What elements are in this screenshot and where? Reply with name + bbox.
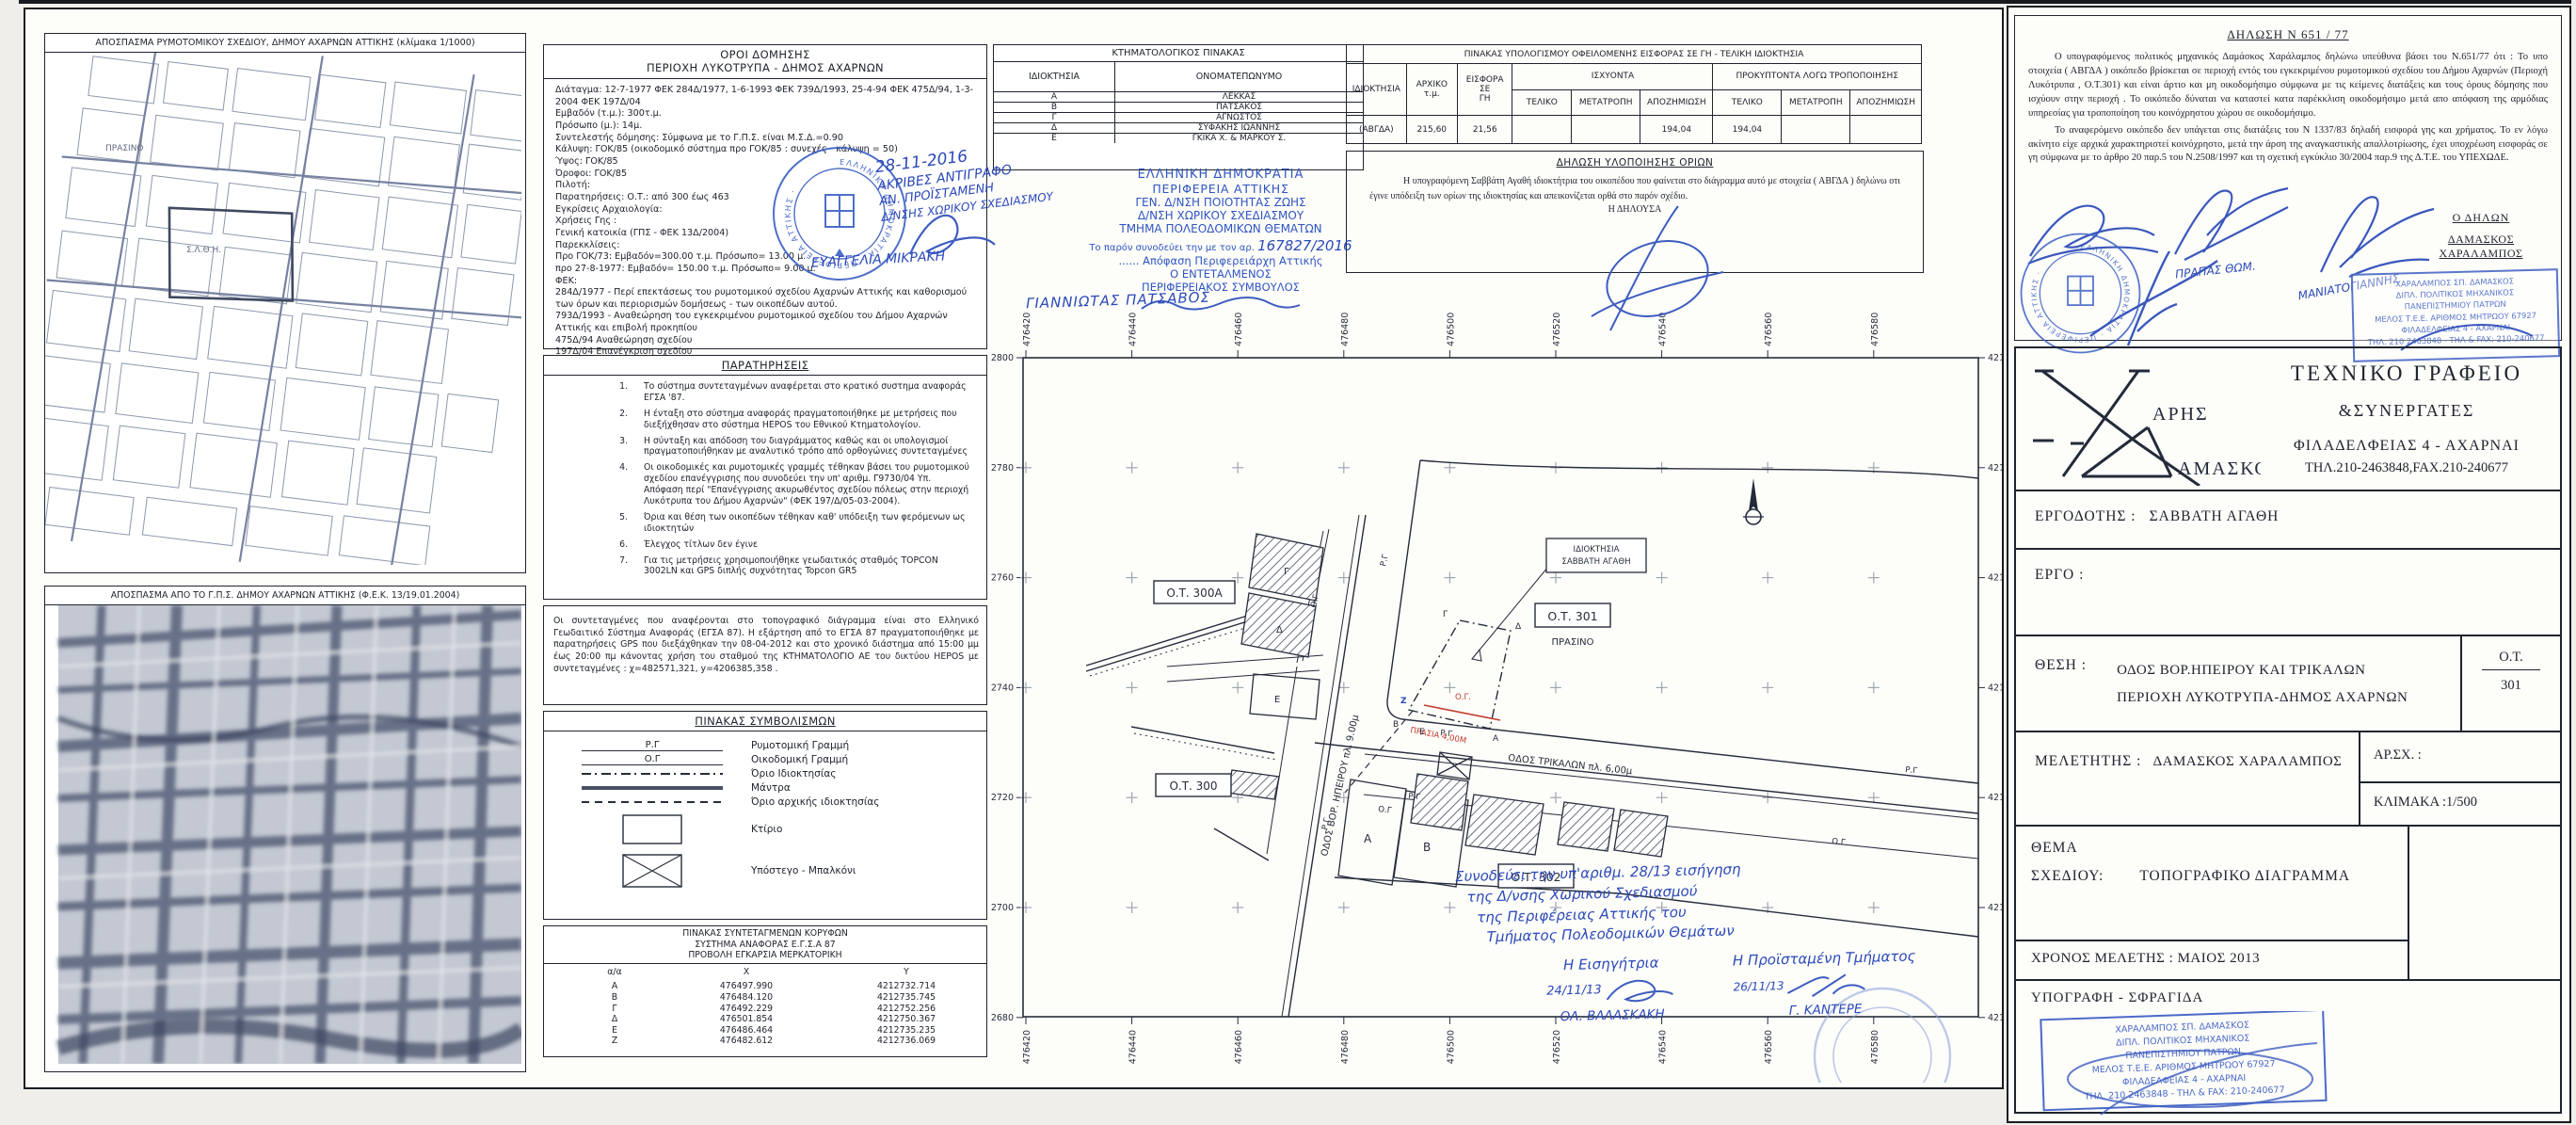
vertex-id: Ζ bbox=[563, 1036, 666, 1047]
svg-text:ΤΗΛ. 210 2463848 - ΤΗΛ & FAX:: ΤΗΛ. 210 2463848 - ΤΗΛ & FAX: 210-240677 bbox=[2084, 1085, 2285, 1101]
legend-panel: ΠΙΝΑΚΑΣ ΣΥΜΒΟΛΙΣΜΩΝ Ρ.Γ Ρυμοτομική Γραμμ… bbox=[543, 711, 987, 920]
office-logo: ΑΡΗΣ ΑΜΑΣΚΟΣ bbox=[2025, 354, 2261, 486]
svg-text:Γ: Γ bbox=[1443, 610, 1448, 619]
svg-text:Ο.Γ: Ο.Γ bbox=[1378, 805, 1392, 815]
kt-owner-id: Γ bbox=[994, 113, 1115, 122]
titleblock-thesi-row: ΘΕΣΗ : ΟΔΟΣ ΒΟΡ.ΗΠΕΙΡΟΥ ΚΑΙ ΤΡΙΚΑΛΩΝ ΠΕΡ… bbox=[2016, 635, 2560, 731]
note-item: Όρια και θέση των οικοπέδων τέθηκαν καθ'… bbox=[631, 512, 971, 535]
eisfora-row-i2 bbox=[1572, 116, 1640, 144]
svg-text:ΔΙΠΛ. ΠΟΛΙΤΙΚΟΣ ΜΗΧΑΝΙΚΟΣ: ΔΙΠΛ. ΠΟΛΙΤΙΚΟΣ ΜΗΧΑΝΙΚΟΣ bbox=[2116, 1034, 2250, 1049]
vertex-letters: Γ Δ Α Β Ε Ζ bbox=[1393, 610, 1522, 744]
ot300a-label: Ο.Τ. 300Α bbox=[1166, 587, 1223, 600]
note-date-1: 24/11/13 bbox=[1546, 982, 1602, 1001]
svg-text:Ρ.Γ: Ρ.Γ bbox=[1408, 792, 1421, 802]
prasino-label: ΠΡΑΣΙΝΟ bbox=[1551, 637, 1593, 648]
vertex-id: Γ bbox=[563, 1004, 666, 1015]
svg-text:ΦΙΛΑΔΕΛΦΕΙΑΣ 4 - ΑΧΑΡΝΑΙ: ΦΙΛΑΔΕΛΦΕΙΑΣ 4 - ΑΧΑΡΝΑΙ bbox=[2122, 1073, 2247, 1088]
ot-value: 301 bbox=[2462, 678, 2560, 694]
declaration-p1: Ο υπογραφόμενος πολιτικός μηχανικός Δαμά… bbox=[2015, 42, 2561, 121]
svg-text:4212780: 4212780 bbox=[990, 463, 1014, 474]
thesi-line-1: ΟΔΟΣ ΒΟΡ.ΗΠΕΙΡΟΥ ΚΑΙ ΤΡΙΚΑΛΩΝ bbox=[2117, 657, 2408, 684]
vertex-id: Α bbox=[563, 981, 666, 992]
svg-text:4212780: 4212780 bbox=[1988, 463, 2002, 474]
declarant-name: ΔΑΜΑΣΚΟΣ ΧΑΡΑΛΑΜΠΟΣ bbox=[2410, 233, 2552, 261]
klimaka-cell: ΚΛΙΜΑΚΑ :1/500 bbox=[2360, 783, 2560, 811]
ot300-label: Ο.Τ. 300 bbox=[1169, 779, 1217, 793]
ot301-label: Ο.Τ. 301 bbox=[1547, 609, 1597, 623]
office-address: ΦΙΛΑΔΕΛΦΕΙΑΣ 4 - ΑΧΑΡΝΑΙ bbox=[2256, 438, 2557, 455]
eisfora-h-isxyonta: ΙΣΧΥΟΝΤΑ bbox=[1512, 64, 1713, 90]
kt-owner-id: Β bbox=[994, 103, 1115, 112]
svg-text:476420: 476420 bbox=[1022, 313, 1032, 346]
office-phone: ΤΗΛ.210-2463848,FAX.210-240677 bbox=[2256, 460, 2557, 476]
coords-title-1: ΠΙΝΑΚΑΣ ΣΥΝΤΕΤΑΓΜΕΝΩΝ ΚΟΡΥΦΩΝ bbox=[544, 928, 986, 940]
main-sheet: ΑΠΟΣΠΑΣΜΑ ΡΥΜΟΤΟΜΙΚΟΥ ΣΧΕΔΙΟΥ, ΔΗΜΟΥ ΑΧΑ… bbox=[24, 8, 2004, 1089]
note-item: Έλεγχος τίτλων δεν έγινε bbox=[631, 539, 971, 551]
callout-line-1: ΙΔΙΟΚΤΗΣΙΑ bbox=[1574, 545, 1620, 554]
vertex-y: 4212752.256 bbox=[826, 1004, 986, 1015]
red-building-line bbox=[1424, 705, 1500, 720]
eisfora-row-i1 bbox=[1512, 116, 1572, 144]
map1-area-label-1: ΠΡΑΣΙΝΟ bbox=[105, 144, 144, 153]
map2-panel: ΑΠΟΣΠΑΣΜΑ ΑΠΟ ΤΟ Γ.Π.Σ. ΔΗΜΟΥ ΑΧΑΡΝΩΝ ΑΤ… bbox=[44, 586, 526, 1072]
svg-text:4212740: 4212740 bbox=[1988, 683, 2002, 693]
gps-note-panel: Οι συντεταγμένες που αναφέρονται στο τοπ… bbox=[543, 605, 987, 705]
og-symbol-text: Ο.Γ bbox=[645, 754, 661, 764]
vertex-x: 476492.229 bbox=[666, 1004, 826, 1015]
building-label-A: Α bbox=[1364, 832, 1372, 845]
svg-text:4212740: 4212740 bbox=[990, 683, 1014, 693]
vertex-y: 4212735.745 bbox=[826, 992, 986, 1004]
svg-text:Ρ.Γ: Ρ.Γ bbox=[1440, 729, 1453, 739]
titleblock-logo-row: ΑΡΗΣ ΑΜΑΣΚΟΣ ΤΕΧΝΙΚΟ ΓΡΑΦΕΙΟ &ΣΥΝΕΡΓΑΤΕΣ… bbox=[2016, 348, 2560, 490]
eisfora-title: ΠΙΝΑΚΑΣ ΥΠΟΛΟΓΙΣΜΟΥ ΟΦΕΙΛΟΜΕΝΗΣ ΕΙΣΦΟΡΑΣ… bbox=[1347, 45, 1922, 64]
dashed-line-symbol bbox=[582, 801, 723, 803]
thick-line-symbol bbox=[582, 786, 723, 790]
vertex-x: 476497.990 bbox=[666, 981, 826, 992]
legend-item-mantra: Μάντρα bbox=[553, 782, 977, 794]
ergodotis-label: ΕΡΓΟΔΟΤΗΣ : bbox=[2035, 508, 2136, 524]
map2-image bbox=[45, 605, 521, 1064]
map1-area-label-2: Σ.Λ.Θ.Η. bbox=[186, 246, 221, 255]
map2-title: ΑΠΟΣΠΑΣΜΑ ΑΠΟ ΤΟ Γ.Π.Σ. ΔΗΜΟΥ ΑΧΑΡΝΩΝ ΑΤ… bbox=[45, 587, 525, 605]
drawing-handwritten-note: Συνοδεύει την υπ'αριθμ. 28/13 εισήγηση τ… bbox=[1431, 855, 1924, 1030]
road-vor-ipeirou-label: ΟΔΟΣ ΒΟΡ. ΗΠΕΙΡΟΥ πλ. 9.00μ bbox=[1320, 714, 1361, 858]
declaration-p2: Το αναφερόμενο οικόπεδο δεν υπάγεται στι… bbox=[2015, 121, 2561, 166]
kt-owner-name: ΛΕΚΚΑΣ bbox=[1115, 92, 1363, 102]
note-item: Η ένταξη στο σύστημα αναφοράς πραγματοπο… bbox=[631, 409, 971, 431]
svg-text:4212720: 4212720 bbox=[990, 793, 1014, 803]
eisfora-h-apozimiosi: ΑΠΟΖΗΜΙΩΣΗ bbox=[1640, 89, 1713, 116]
vertex-y: 4212732.714 bbox=[826, 981, 986, 992]
ot-label: Ο.Τ. bbox=[2482, 650, 2540, 670]
kt-owner-id: Α bbox=[994, 92, 1115, 102]
coords-h-x: X bbox=[666, 967, 826, 978]
building-label-E: Ε bbox=[1274, 695, 1280, 705]
kt-owner-name: ΠΑΤΣΑΚΟΣ bbox=[1115, 103, 1363, 112]
thesi-line-2: ΠΕΡΙΟΧΗ ΛΥΚΟΤΡΥΠΑ-ΔΗΜΟΣ ΑΧΑΡΝΩΝ bbox=[2117, 684, 2408, 712]
dashdot-line-symbol bbox=[582, 773, 723, 775]
kt-header-onoma: ΟΝΟΜΑΤΕΠΩΝΥΜΟ bbox=[1115, 62, 1363, 91]
svg-text:Ρ.Γ: Ρ.Γ bbox=[1905, 765, 1918, 776]
svg-text:476580: 476580 bbox=[1870, 313, 1880, 346]
red-prasia-label: ΠΡΑΣΙΑ 4,00Μ bbox=[1409, 726, 1466, 746]
svg-text:4212700: 4212700 bbox=[990, 903, 1014, 913]
eisfora-row-p1: 194,04 bbox=[1713, 116, 1782, 144]
titleblock-meletitis-row: ΜΕΛΕΤΗΤΗΣ : ΔΑΜΑΣΚΟΣ ΧΑΡΑΛΑΜΠΟΣ ΑΡ.ΣΧ. :… bbox=[2016, 731, 2560, 825]
eisfora-row-p3 bbox=[1850, 116, 1922, 144]
region-line: ΤΜΗΜΑ ΠΟΛΕΟΔΟΜΙΚΩΝ ΘΕΜΑΤΩΝ bbox=[1037, 222, 1404, 235]
svg-text:4212700: 4212700 bbox=[1988, 903, 2002, 913]
canopy-symbol bbox=[621, 853, 683, 889]
red-og-label: Ο.Γ. bbox=[1455, 693, 1471, 702]
svg-text:476560: 476560 bbox=[1764, 313, 1774, 346]
map1-title: ΑΠΟΣΠΑΣΜΑ ΡΥΜΟΤΟΜΙΚΟΥ ΣΧΕΔΙΟΥ, ΔΗΜΟΥ ΑΧΑ… bbox=[45, 34, 525, 53]
coords-title-3: ΠΡΟΒΟΛΗ ΕΓΚΑΡΣΙΑ ΜΕΡΚΑΤΟΡΙΚΗ bbox=[544, 950, 986, 961]
eisfora-panel: ΠΙΝΑΚΑΣ ΥΠΟΛΟΓΙΣΜΟΥ ΟΦΕΙΛΟΜΕΝΗΣ ΕΙΣΦΟΡΑΣ… bbox=[1346, 44, 1922, 144]
building-E-outline bbox=[1250, 674, 1320, 719]
vertex-x: 476484.120 bbox=[666, 992, 826, 1004]
svg-text:Ο.Γ: Ο.Γ bbox=[1832, 837, 1846, 847]
note-item: Οι οικοδομικές και ρυμοτομικές γραμμές τ… bbox=[631, 462, 971, 507]
paratiriseis-panel: ΠΑΡΑΤΗΡΗΣΕΙΣ Το σύστημα συντεταγμένων αν… bbox=[543, 355, 987, 600]
region-line: Ο ΕΝΤΕΤΑΛΜΕΝΟΣ bbox=[1037, 267, 1404, 281]
ot300-hatched-piece bbox=[1227, 770, 1279, 799]
declaration-title: ΔΗΛΩΣΗ Ν 651 / 77 bbox=[2015, 16, 2561, 42]
gps-note-text: Οι συντεταγμένες που αναφέρονται στο τοπ… bbox=[544, 606, 986, 675]
svg-text:476520: 476520 bbox=[1552, 313, 1562, 346]
eisfora-h-metatropi: ΜΕΤΑΤΡΟΠΗ bbox=[1572, 89, 1640, 116]
ypografi-label: ΥΠΟΓΡΑΦΗ - ΣΦΡΑΓΙΔΑ bbox=[2016, 981, 2560, 1006]
vertex-x: 476501.854 bbox=[666, 1014, 826, 1025]
note-signature-2 bbox=[1784, 968, 1869, 1002]
logo-name-bottom: ΑΜΑΣΚΟΣ bbox=[2178, 458, 2261, 479]
coords-h-id: α/α bbox=[563, 967, 666, 978]
dilosi-title: ΔΗΛΩΣΗ ΥΛΟΠΟΙΗΣΗΣ ΟΡΙΩΝ bbox=[1347, 152, 1923, 169]
scan-top-rule bbox=[19, 0, 2571, 4]
xronos-cell: ΧΡΟΝΟΣ ΜΕΛΕΤΗΣ : ΜΑΙΟΣ 2013 bbox=[2016, 941, 2408, 981]
vertex-y: 4212735.235 bbox=[826, 1025, 986, 1037]
eisfora-h-idioktisia: ΙΔΙΟΚΤΗΣΙΑ bbox=[1347, 64, 1407, 116]
svg-text:476520: 476520 bbox=[1552, 1030, 1562, 1064]
road-trikalon-label: ΟΔΟΣ ΤΡΙΚΑΛΩΝ πλ. 6,00μ bbox=[1508, 753, 1634, 777]
note-signature-1 bbox=[1601, 973, 1677, 1007]
eisfora-row-i3: 194,04 bbox=[1640, 116, 1713, 144]
coords-title-2: ΣΥΣΤΗΜΑ ΑΝΑΦΟΡΑΣ Ε.Γ.Σ.Α 87 bbox=[544, 940, 986, 951]
eisfora-h-teliko: ΤΕΛΙΚΟ bbox=[1512, 89, 1572, 116]
svg-text:4212680: 4212680 bbox=[990, 1013, 1014, 1023]
declaration-651-panel: ΔΗΛΩΣΗ Ν 651 / 77 Ο υπογραφόμενος πολιτι… bbox=[2014, 15, 2562, 341]
ergodotis-value: ΣΑΒΒΑΤΗ ΑΓΑΘΗ bbox=[2150, 508, 2280, 524]
svg-text:Ρ.Γ: Ρ.Γ bbox=[1379, 554, 1391, 568]
svg-text:Β: Β bbox=[1393, 720, 1399, 730]
ypografi-stamp: ΧΑΡΑΛΑΜΠΟΣ ΣΠ. ΔΑΜΑΣΚΟΣ ΔΙΠΛ. ΠΟΛΙΤΙΚΟΣ … bbox=[2035, 1011, 2355, 1117]
coords-table-panel: ΠΙΝΑΚΑΣ ΣΥΝΤΕΤΑΓΜΕΝΩΝ ΚΟΡΥΦΩΝ ΣΥΣΤΗΜΑ ΑΝ… bbox=[543, 925, 987, 1057]
eisfora-h-metatropi2: ΜΕΤΑΤΡΟΠΗ bbox=[1782, 89, 1850, 116]
note-item: Το σύστημα συντεταγμένων αναφέρεται στο … bbox=[631, 381, 971, 404]
rg-symbol-text: Ρ.Γ bbox=[646, 740, 660, 750]
declaration-signature-3 bbox=[2072, 242, 2222, 350]
region-line: ...... Απόφαση Περιφερειάρχη Αττικής bbox=[1037, 254, 1404, 267]
ot-cell: Ο.Τ. 301 bbox=[2460, 636, 2560, 731]
svg-text:4212720: 4212720 bbox=[1988, 793, 2002, 803]
svg-text:476500: 476500 bbox=[1446, 313, 1456, 346]
svg-text:4212800: 4212800 bbox=[990, 353, 1014, 363]
titleblock-ergodotis-row: ΕΡΓΟΔΟΤΗΣ : ΣΑΒΒΑΤΗ ΑΓΑΘΗ bbox=[2016, 490, 2560, 548]
title-block: ΑΡΗΣ ΑΜΑΣΚΟΣ ΤΕΧΝΙΚΟ ΓΡΑΦΕΙΟ &ΣΥΝΕΡΓΑΤΕΣ… bbox=[2014, 346, 2562, 1114]
legend-item-boundary: Όριο Ιδιοκτησίας bbox=[553, 768, 977, 779]
svg-text:476540: 476540 bbox=[1658, 1030, 1669, 1064]
vertex-x: 476486.464 bbox=[666, 1025, 826, 1037]
titleblock-ergo-row: ΕΡΓΟ : bbox=[2016, 548, 2560, 635]
eisfora-table: ΠΙΝΑΚΑΣ ΥΠΟΛΟΓΙΣΜΟΥ ΟΦΕΙΛΟΜΕΝΗΣ ΕΙΣΦΟΡΑΣ… bbox=[1346, 44, 1922, 144]
vertex-y: 4212750.367 bbox=[826, 1014, 986, 1025]
eisfora-h-teliko2: ΤΕΛΙΚΟ bbox=[1713, 89, 1782, 116]
svg-text:ΜΕΛΟΣ Τ.Ε.Ε. ΑΡΙΘΜΟΣ ΜΗΤΡΩΟΥ 6: ΜΕΛΟΣ Τ.Ε.Ε. ΑΡΙΘΜΟΣ ΜΗΤΡΩΟΥ 67927 bbox=[2092, 1059, 2276, 1076]
eisfora-row-id: (ΑΒΓΔΑ) bbox=[1347, 116, 1407, 144]
dilosi-signature bbox=[1573, 189, 1742, 340]
north-arrow-icon bbox=[1743, 478, 1764, 524]
svg-text:476420: 476420 bbox=[1022, 1030, 1032, 1064]
eisfora-row-arxiko: 215,60 bbox=[1406, 116, 1457, 144]
ergo-label: ΕΡΓΟ : bbox=[2035, 567, 2084, 583]
svg-text:4212680: 4212680 bbox=[1988, 1013, 2002, 1023]
svg-text:Ζ: Ζ bbox=[1400, 697, 1407, 706]
region-line: ΠΕΡΙΦΕΡΕΙΑΚΟΣ ΣΥΜΒΟΥΛΟΣ bbox=[1037, 281, 1404, 294]
kt-title: ΚΤΗΜΑΤΟΛΟΓΙΚΟΣ ΠΙΝΑΚΑΣ bbox=[994, 45, 1363, 62]
svg-text:476480: 476480 bbox=[1340, 1030, 1351, 1064]
svg-text:ΧΑΡΑΛΑΜΠΟΣ ΣΠ. ΔΑΜΑΣΚΟΣ: ΧΑΡΑΛΑΜΠΟΣ ΣΠ. ΔΑΜΑΣΚΟΣ bbox=[2115, 1021, 2249, 1036]
region-ref-label: Το παρόν συνοδεύει την με τον αρ. bbox=[1089, 243, 1254, 253]
building-label-D: Δ bbox=[1276, 625, 1283, 635]
svg-text:Δ: Δ bbox=[1515, 622, 1522, 632]
vertex-y: 4212736.069 bbox=[826, 1036, 986, 1047]
svg-text:476440: 476440 bbox=[1128, 1030, 1139, 1064]
building-symbol bbox=[621, 813, 683, 845]
svg-text:476580: 476580 bbox=[1870, 1030, 1880, 1064]
thema-label: ΘΕΜΑ bbox=[2031, 840, 2408, 857]
building-label-B: Β bbox=[1423, 841, 1431, 854]
legend-item-ypostego: Υπόστεγο - Μπαλκόνι bbox=[553, 851, 977, 891]
eisfora-h-apozimiosi2: ΑΠΟΖΗΜΙΩΣΗ bbox=[1850, 89, 1922, 116]
eisfora-row-p2 bbox=[1782, 116, 1850, 144]
legend-item-orig-boundary: Όριο αρχικής ιδιοκτησίας bbox=[553, 796, 977, 808]
titleblock-ypografi-row: ΥΠΟΓΡΑΦΗ - ΣΦΡΑΓΙΔΑ ΧΑΡΑΛΑΜΠΟΣ ΣΠ. ΔΑΜΑΣ… bbox=[2016, 979, 2560, 1116]
vertex-id: Ε bbox=[563, 1025, 666, 1037]
svg-text:Α: Α bbox=[1493, 734, 1499, 744]
thema-value: ΤΟΠΟΓΡΑΦΙΚΟ ΔΙΑΓΡΑΜΜΑ bbox=[2139, 868, 2350, 884]
dilosi-orion-panel: ΔΗΛΩΣΗ ΥΛΟΠΟΙΗΣΗΣ ΟΡΙΩΝ Η υπογραφόμενη Σ… bbox=[1346, 151, 1924, 273]
oroi-subtitle: ΠΕΡΙΟΧΗ ΛΥΚΟΤΡΥΠΑ - ΔΗΜΟΣ ΑΧΑΡΝΩΝ bbox=[544, 61, 986, 74]
kt-owner-name: ΑΓΝΩΣΤΟΣ bbox=[1115, 113, 1363, 122]
legend-item-og: Ο.Γ Οικοδομική Γραμμή bbox=[553, 754, 977, 765]
vertex-id: Δ bbox=[563, 1014, 666, 1025]
svg-text:Ο.Γ: Ο.Γ bbox=[1309, 593, 1321, 608]
office-subtitle: &ΣΥΝΕΡΓΑΤΕΣ bbox=[2256, 401, 2557, 421]
legend-title: ΠΙΝΑΚΑΣ ΣΥΜΒΟΛΙΣΜΩΝ bbox=[544, 712, 986, 731]
eisfora-h-eisfora: ΕΙΣΦΟΡΑ ΣΕ ΓΗ bbox=[1457, 64, 1512, 116]
region-ref-number: 167827/2016 bbox=[1257, 237, 1352, 254]
legend-item-ktirio: Κτίριο bbox=[553, 811, 977, 848]
note-date-2: 26/11/13 bbox=[1733, 978, 1784, 996]
kt-header-idioktisia: ΙΔΙΟΚΤΗΣΙΑ bbox=[994, 62, 1115, 91]
logo-name-top: ΑΡΗΣ bbox=[2152, 404, 2209, 425]
paratiriseis-title: ΠΑΡΑΤΗΡΗΣΕΙΣ bbox=[544, 356, 986, 376]
arsx-cell: ΑΡ.ΣΧ. : bbox=[2360, 732, 2560, 783]
kt-owner-name: ΓΚΙΚΑ Χ. & ΜΑΡΚΟΥ Σ. bbox=[1115, 134, 1363, 143]
callout-line-2: ΣΑΒΒΑΤΗ ΑΓΑΘΗ bbox=[1561, 557, 1630, 567]
svg-text:4212800: 4212800 bbox=[1988, 353, 2002, 363]
note-item: Για τις μετρήσεις χρησιμοποιήθηκε γεωδαι… bbox=[631, 555, 971, 578]
note-name-1: ΟΛ. ΒΑΛΑΣΚΑΚΗ bbox=[1547, 1005, 1678, 1027]
titleblock-thema-xronos-rows: ΘΕΜΑ ΣΧΕΔΙΟΥ: ΤΟΠΟΓΡΑΦΙΚΟ ΔΙΑΓΡΑΜΜΑ ΧΡΟΝ… bbox=[2016, 825, 2560, 979]
meletitis-value: ΔΑΜΑΣΚΟΣ ΧΑΡΑΛΑΜΠΟΣ bbox=[2152, 754, 2342, 769]
svg-text:4212760: 4212760 bbox=[1988, 573, 2002, 584]
svg-text:4212760: 4212760 bbox=[990, 573, 1014, 584]
declarant-label: Ο ΔΗΛΩΝ bbox=[2410, 211, 2552, 225]
svg-text:476560: 476560 bbox=[1764, 1030, 1774, 1064]
kt-owner-name: ΣΥΦΑΚΗΣ ΙΩΑΝΝΗΣ bbox=[1115, 123, 1363, 133]
map1-image: ΠΡΑΣΙΝΟ Σ.Λ.Θ.Η. bbox=[45, 53, 521, 565]
svg-text:476460: 476460 bbox=[1234, 1030, 1244, 1064]
vertex-id: Β bbox=[563, 992, 666, 1004]
building-label-G: Γ bbox=[1284, 567, 1289, 577]
svg-text:476500: 476500 bbox=[1446, 1030, 1456, 1064]
oroi-title: ΟΡΟΙ ΔΟΜΗΣΗΣ bbox=[544, 48, 986, 61]
region-line: Δ/ΝΣΗ ΧΩΡΙΚΟΥ ΣΧΕΔΙΑΣΜΟΥ bbox=[1037, 209, 1404, 222]
empty-side-cell bbox=[2408, 827, 2560, 981]
sxediou-label: ΣΧΕΔΙΟΥ: bbox=[2031, 868, 2104, 884]
map1-panel: ΑΠΟΣΠΑΣΜΑ ΡΥΜΟΤΟΜΙΚΟΥ ΣΧΕΔΙΟΥ, ΔΗΜΟΥ ΑΧΑ… bbox=[44, 33, 526, 573]
eisfora-h-arxiko: ΑΡΧΙΚΟ τ.μ. bbox=[1406, 64, 1457, 116]
meletitis-label: ΜΕΛΕΤΗΤΗΣ : bbox=[2035, 753, 2141, 769]
svg-text:Ε: Ε bbox=[1419, 728, 1425, 737]
thesi-label: ΘΕΣΗ : bbox=[2035, 657, 2087, 673]
eisfora-row-eisfora: 21,56 bbox=[1457, 116, 1512, 144]
office-title: ΤΕΧΝΙΚΟ ΓΡΑΦΕΙΟ bbox=[2256, 362, 2557, 386]
coords-h-y: Y bbox=[826, 967, 986, 978]
eisfora-h-prokyptonta: ΠΡΟΚΥΠΤΟΝΤΑ ΛΟΓΩ ΤΡΟΠΟΠΟΙΗΣΗΣ bbox=[1713, 64, 1922, 90]
vertex-x: 476482.612 bbox=[666, 1036, 826, 1047]
legend-item-rg: Ρ.Γ Ρυμοτομική Γραμμή bbox=[553, 740, 977, 751]
right-sheet: ΔΗΛΩΣΗ Ν 651 / 77 Ο υπογραφόμενος πολιτι… bbox=[2007, 6, 2571, 1123]
note-item: Η σύνταξη και απόδοση του διαγράμματος κ… bbox=[631, 436, 971, 458]
